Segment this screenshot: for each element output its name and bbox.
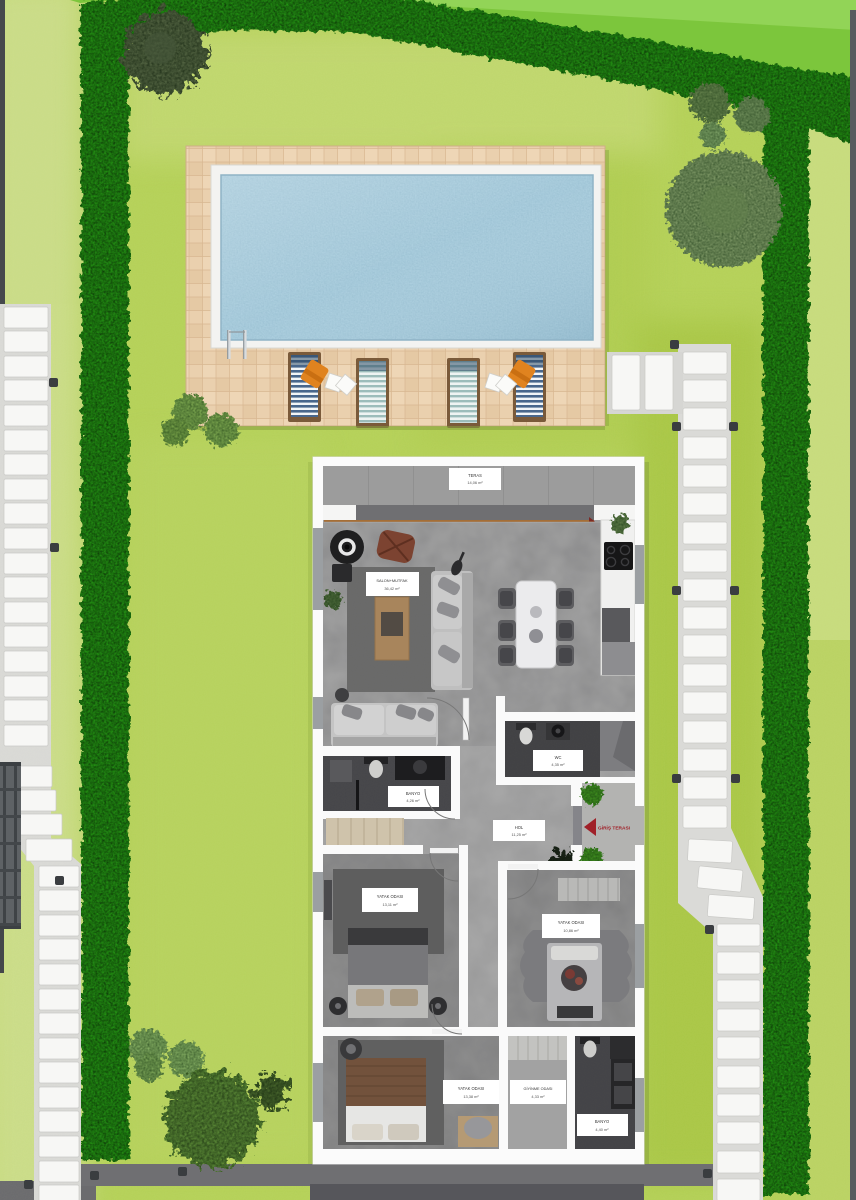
svg-text:4,35 m²: 4,35 m² bbox=[551, 762, 565, 767]
svg-text:4,40 m²: 4,40 m² bbox=[595, 1127, 609, 1132]
svg-text:14,06 m²: 14,06 m² bbox=[467, 480, 483, 485]
svg-text:10,86 m²: 10,86 m² bbox=[563, 928, 579, 933]
svg-text:4,33 m²: 4,33 m² bbox=[531, 1094, 545, 1099]
svg-text:YATAK ODASI: YATAK ODASI bbox=[377, 894, 403, 899]
svg-text:YATAK ODASI: YATAK ODASI bbox=[458, 1086, 484, 1091]
svg-text:13,38 m²: 13,38 m² bbox=[463, 1094, 479, 1099]
svg-text:4,26 m²: 4,26 m² bbox=[406, 798, 420, 803]
svg-text:GİRİŞ TERASI: GİRİŞ TERASI bbox=[598, 825, 631, 832]
svg-text:BANYO: BANYO bbox=[406, 791, 420, 796]
svg-text:YATAK ODASI: YATAK ODASI bbox=[558, 920, 584, 925]
svg-text:SALON+MUTFAK: SALON+MUTFAK bbox=[376, 578, 408, 583]
svg-text:13,11 m²: 13,11 m² bbox=[382, 902, 398, 907]
svg-text:WC: WC bbox=[555, 755, 562, 760]
svg-text:BANYO: BANYO bbox=[595, 1119, 609, 1124]
svg-text:GİYİNME ODASI: GİYİNME ODASI bbox=[524, 1086, 553, 1091]
svg-text:36,42 m²: 36,42 m² bbox=[384, 586, 400, 591]
svg-text:HOL: HOL bbox=[515, 825, 524, 830]
svg-text:TERAS: TERAS bbox=[468, 473, 482, 478]
svg-text:11,25 m²: 11,25 m² bbox=[511, 832, 527, 837]
